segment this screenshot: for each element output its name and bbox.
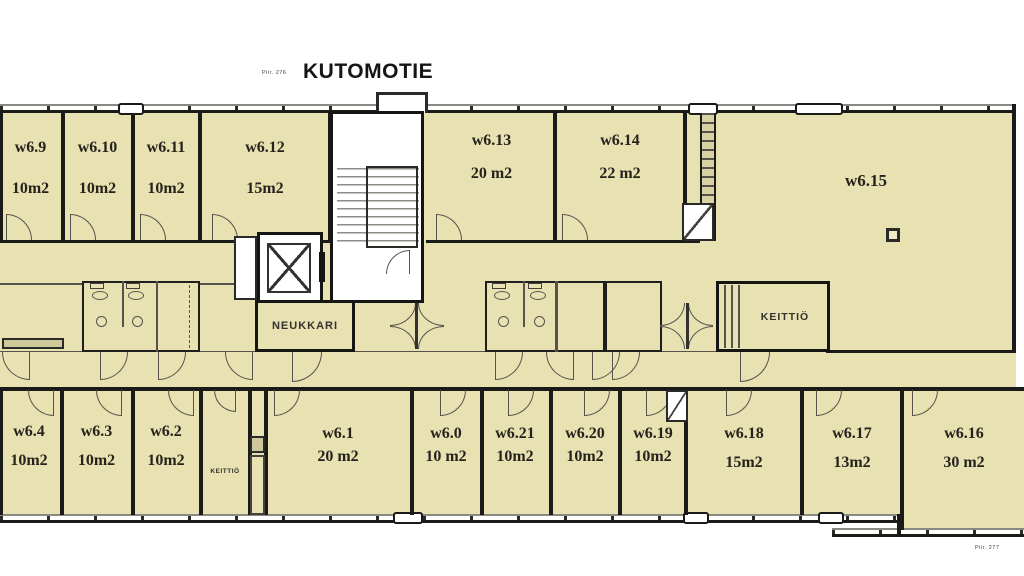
keittio-label: KEITTIÖ [740,281,830,352]
page-title: KUTOMOTIE [303,60,433,84]
room-id: w6.21 [495,426,535,443]
room-area: 30 m2 [943,455,984,472]
drawing-number-bottom: Piir. 277 [975,545,999,551]
room-id: w6.2 [150,424,182,441]
room-id: w6.19 [633,426,673,443]
wc-cistern [90,283,104,289]
room-id: w6.0 [430,426,462,443]
corridor-line [0,283,82,285]
shaft [234,236,257,300]
room-area: 10 m2 [425,449,466,466]
kitchen-counter-line [731,285,733,348]
room-id: w6.1 [322,426,354,443]
room-id: w6.20 [565,426,605,443]
room-w6-21: w6.21 10m2 [482,426,548,466]
exterior-wall-bottom-right [832,528,1024,537]
double-door-post [686,303,689,349]
exterior-wall-bottom [0,514,900,523]
room-area: 10m2 [78,453,115,470]
room-id: w6.13 [472,133,512,150]
bench [2,338,64,349]
room-w6-3: w6.3 10m2 [63,424,130,470]
room-area: 10m2 [12,181,49,198]
floor-plan: Piir. 276 KUTOMOTIE [0,0,1024,576]
wc-cistern [528,283,542,289]
room-area: 10m2 [10,453,47,470]
wall-top-rooms-right [426,240,700,243]
wc-dashed-screen [189,285,190,348]
room-w6-19: w6.19 10m2 [621,426,685,466]
room-area: 10m2 [147,453,184,470]
kitchen-counter-line [724,285,726,348]
room-w6-16: w6.16 30 m2 [904,426,1024,472]
room-area: 10m2 [566,449,603,466]
toilet [96,316,107,327]
room-w6-2: w6.2 10m2 [134,424,198,470]
room-id: w6.18 [724,426,764,443]
toilet [132,316,143,327]
kitchen-fixture [250,436,265,453]
room-area: 20 m2 [471,166,512,183]
room-w6-20: w6.20 10m2 [552,426,618,466]
room-area: 15m2 [725,455,762,472]
toilet [534,316,545,327]
room-w6-10: w6.10 10m2 [64,140,131,198]
room-id: w6.11 [147,140,186,157]
pier [795,103,843,115]
room-id: w6.4 [13,424,45,441]
room-id: w6.17 [832,426,872,443]
room-w6-12: w6.12 15m2 [202,140,328,198]
room-w6-0: w6.0 10 m2 [412,426,480,466]
room-area: 10m2 [634,449,671,466]
room-id: w6.12 [245,140,285,157]
room-id: w6.15 [845,172,887,190]
sink [530,291,546,300]
room-id: w6.9 [15,140,47,157]
wc-partition [523,281,525,327]
kitchen-counter [250,455,265,515]
closet-shaft [666,390,688,422]
toilet [498,316,509,327]
elevator-counterweight [319,252,325,282]
room-id: w6.10 [78,140,118,157]
room-w6-15: w6.15 [720,172,1012,190]
stair-flight [366,166,418,248]
sink [128,291,144,300]
wc-partition [555,281,558,352]
exterior-wall-top [0,104,1016,113]
room-w6-17: w6.17 13m2 [804,426,900,472]
room-w6-4: w6.4 10m2 [0,424,58,470]
room-area: 13m2 [833,455,870,472]
room-w6-1: w6.1 20 m2 [268,426,408,466]
utility-room [605,281,662,352]
sink [494,291,510,300]
entrance-vestibule [376,92,428,113]
wc-partition [156,281,158,352]
drawing-number-top: Piir. 276 [262,70,286,76]
room-area: 10m2 [79,181,116,198]
sink [92,291,108,300]
wall [199,390,203,515]
room-w6-11: w6.11 10m2 [134,140,198,198]
room-id: w6.14 [600,133,640,150]
keittio-small-label: KEITTIÖ [202,468,248,475]
closet-shaft [682,203,714,241]
wc-cistern [126,283,140,289]
wall-right-edge [1012,104,1016,353]
neukkari-label: NEUKKARI [255,300,355,352]
wall-w6-15-bottom [826,350,1016,353]
room-area: 10m2 [496,449,533,466]
room-area: 20 m2 [317,449,358,466]
wc-cistern [492,283,506,289]
room-id: w6.3 [81,424,113,441]
room-w6-9: w6.9 10m2 [0,140,61,198]
room-area: 22 m2 [599,166,640,183]
wc-partition [122,281,124,327]
elevator-car-icon [267,243,311,293]
room-w6-18: w6.18 15m2 [688,426,800,472]
double-door-post [415,303,418,349]
column-marker [886,228,900,242]
room-w6-13: w6.13 20 m2 [430,133,553,183]
pier [393,512,423,524]
room-id: w6.16 [944,426,984,443]
room-area: 15m2 [246,181,283,198]
room-w6-14: w6.14 22 m2 [557,133,683,183]
room-area: 10m2 [147,181,184,198]
pier [818,512,844,524]
